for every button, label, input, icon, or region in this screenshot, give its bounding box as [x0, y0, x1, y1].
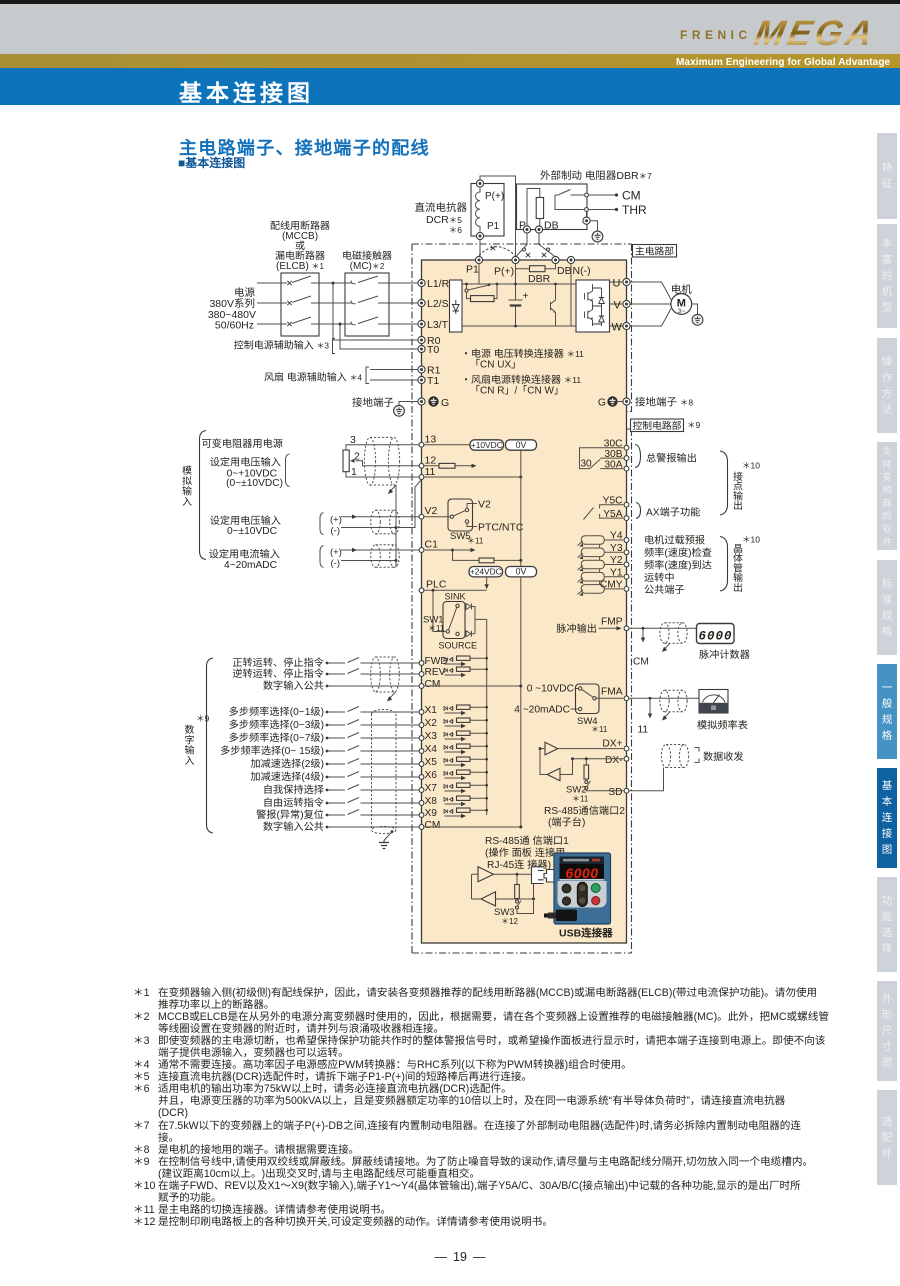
- svg-text:字: 字: [185, 734, 195, 746]
- svg-text:P(+): P(+): [494, 266, 514, 278]
- svg-text:加减速选择(4级): 加减速选择(4级): [250, 771, 324, 783]
- svg-text:CM: CM: [633, 657, 649, 668]
- svg-text:3: 3: [350, 434, 356, 446]
- svg-text:DX-: DX-: [605, 755, 623, 766]
- svg-text:・风扇电源转换连接器 ＊11: ・风扇电源转换连接器 ＊11: [461, 374, 581, 386]
- svg-text:N(-): N(-): [573, 265, 591, 277]
- svg-text:CM: CM: [622, 189, 641, 203]
- svg-text:警报(异常)复位: 警报(异常)复位: [256, 809, 324, 821]
- svg-text:多步频率选择(0~7级): 多步频率选择(0~7级): [229, 732, 324, 744]
- svg-text:1: 1: [351, 466, 357, 478]
- svg-text:P1: P1: [466, 264, 479, 276]
- svg-text:主电路部: 主电路部: [635, 246, 674, 258]
- svg-text:入: 入: [185, 755, 195, 767]
- svg-text:RS-485通 信端口1: RS-485通 信端口1: [485, 835, 569, 847]
- svg-text:11: 11: [638, 725, 649, 736]
- svg-text:出: 出: [733, 582, 743, 594]
- svg-text:直流电抗器: 直流电抗器: [415, 202, 468, 214]
- svg-text:L3/T: L3/T: [427, 319, 449, 331]
- svg-text:CMY: CMY: [600, 580, 623, 591]
- svg-text:(0~±10VDC): (0~±10VDC): [226, 478, 283, 489]
- svg-text:THR: THR: [622, 203, 647, 217]
- svg-text:DX+: DX+: [602, 738, 622, 749]
- svg-text:2: 2: [354, 451, 360, 463]
- svg-text:加减速选择(2级): 加减速选择(2级): [250, 758, 324, 770]
- svg-text:接地端子: 接地端子: [352, 397, 394, 409]
- svg-text:接地端子 ＊8: 接地端子 ＊8: [635, 397, 693, 409]
- svg-text:出: 出: [733, 500, 743, 512]
- svg-text:电机过载预报: 电机过载预报: [644, 535, 705, 547]
- svg-text:50/60Hz: 50/60Hz: [215, 320, 254, 332]
- svg-text:＊10: ＊10: [742, 461, 760, 471]
- svg-text:L2/S: L2/S: [427, 298, 449, 310]
- svg-text:6000: 6000: [565, 865, 598, 881]
- svg-text:(+): (+): [330, 547, 342, 558]
- svg-text:数据收发: 数据收发: [703, 751, 744, 763]
- svg-text:入: 入: [182, 496, 192, 508]
- svg-text:V2: V2: [478, 499, 491, 511]
- svg-text:数: 数: [185, 724, 195, 736]
- svg-text:U: U: [613, 278, 621, 290]
- svg-text:＊11: ＊11: [428, 624, 445, 633]
- svg-text:数字输入公共: 数字输入公共: [263, 680, 324, 692]
- svg-text:控制电路部: 控制电路部: [633, 420, 682, 432]
- svg-text:+: +: [523, 291, 529, 302]
- svg-text:Y1: Y1: [610, 567, 623, 578]
- svg-text:逆转运转、停止指令: 逆转运转、停止指令: [232, 668, 324, 680]
- svg-text:P(+): P(+): [485, 191, 504, 202]
- svg-text:＊6: ＊6: [449, 225, 463, 235]
- svg-text:可变电阻器用电源: 可变电阻器用电源: [202, 438, 284, 450]
- svg-text:(ELCB) ＊1: (ELCB) ＊1: [276, 261, 325, 272]
- svg-text:Y2: Y2: [610, 555, 623, 566]
- svg-text:输: 输: [182, 486, 192, 498]
- svg-text:频率(速度)检查: 频率(速度)检查: [644, 547, 712, 559]
- svg-text:FMP: FMP: [601, 617, 623, 628]
- svg-text:设定用电压输入: 设定用电压输入: [210, 457, 281, 469]
- svg-text:多步频率选择(0~ 15级): 多步频率选择(0~ 15级): [220, 745, 324, 757]
- svg-text:X5: X5: [425, 757, 438, 768]
- svg-text:X6: X6: [425, 770, 438, 781]
- svg-text:(操作 面板 连接用: (操作 面板 连接用: [485, 847, 565, 859]
- svg-text:总警报输出: 总警报输出: [646, 453, 697, 465]
- svg-text:Y4: Y4: [610, 531, 623, 542]
- svg-text:(-): (-): [331, 558, 341, 569]
- svg-text:运转中: 运转中: [644, 572, 675, 584]
- svg-text:DB: DB: [557, 265, 572, 277]
- svg-text:＊11: ＊11: [467, 537, 484, 546]
- svg-text:(MC)＊2: (MC)＊2: [350, 261, 385, 272]
- svg-text:风扇 电源辅助输入 ＊4: 风扇 电源辅助输入 ＊4: [264, 372, 363, 384]
- svg-text:13: 13: [425, 434, 437, 446]
- svg-text:0~±10VDC: 0~±10VDC: [227, 526, 277, 537]
- svg-text:X4: X4: [425, 744, 438, 755]
- svg-text:CM: CM: [425, 679, 441, 690]
- svg-text:DB: DB: [544, 220, 559, 232]
- svg-text:4~20mADC: 4~20mADC: [224, 560, 277, 571]
- svg-text:CM: CM: [425, 820, 441, 831]
- svg-text:SINK: SINK: [445, 592, 466, 602]
- svg-text:控制电源辅助输入 ＊3: 控制电源辅助输入 ＊3: [234, 340, 330, 352]
- svg-text:G: G: [598, 397, 606, 409]
- svg-text:0V: 0V: [516, 440, 527, 450]
- svg-text:FMA: FMA: [601, 687, 623, 698]
- svg-text:自我保持选择: 自我保持选择: [263, 784, 324, 796]
- svg-text:X8: X8: [425, 796, 438, 807]
- svg-text:PLC: PLC: [426, 579, 447, 591]
- svg-text:SOURCE: SOURCE: [439, 641, 478, 651]
- svg-text:12: 12: [425, 455, 437, 467]
- svg-text:C1: C1: [425, 539, 439, 551]
- svg-text:PTC/NTC: PTC/NTC: [478, 522, 524, 534]
- svg-text:公共端子: 公共端子: [644, 584, 685, 596]
- svg-text:+10VDC: +10VDC: [471, 440, 503, 450]
- svg-text:V2: V2: [425, 505, 438, 517]
- svg-text:＊9: ＊9: [196, 714, 210, 724]
- svg-text:频率(速度)到达: 频率(速度)到达: [644, 560, 712, 572]
- svg-text:自由运转指令: 自由运转指令: [263, 797, 324, 809]
- svg-text:T1: T1: [427, 375, 439, 387]
- svg-text:+24VDC: +24VDC: [470, 567, 502, 577]
- svg-text:「CN R」/「CN W」: 「CN R」/「CN W」: [470, 385, 564, 397]
- svg-text:REV: REV: [425, 667, 446, 678]
- svg-text:L1/R: L1/R: [427, 278, 450, 290]
- svg-text:6000: 6000: [698, 630, 732, 644]
- svg-text:X2: X2: [425, 718, 438, 729]
- svg-text:＊12: ＊12: [501, 917, 518, 926]
- svg-text:X3: X3: [425, 731, 438, 742]
- svg-text:电机: 电机: [671, 284, 692, 296]
- svg-text:模拟频率表: 模拟频率表: [697, 720, 748, 732]
- svg-text:V: V: [614, 300, 622, 312]
- svg-text:多步频率选择(0~3级): 多步频率选择(0~3级): [229, 719, 324, 731]
- svg-text:＊9: ＊9: [687, 420, 701, 430]
- svg-text:脉冲计数器: 脉冲计数器: [699, 649, 750, 661]
- svg-text:设定用电流输入: 设定用电流输入: [209, 549, 280, 561]
- svg-text:＊11: ＊11: [572, 795, 589, 804]
- svg-text:输: 输: [185, 745, 195, 757]
- svg-text:11: 11: [425, 466, 436, 478]
- svg-text:USB连接器: USB连接器: [559, 927, 613, 940]
- svg-text:X7: X7: [425, 783, 438, 794]
- svg-text:0V: 0V: [516, 567, 527, 577]
- svg-text:AX端子功能: AX端子功能: [646, 507, 700, 519]
- svg-text:数字输入公共: 数字输入公共: [263, 821, 324, 833]
- svg-text:0 ~10VDC: 0 ~10VDC: [527, 684, 574, 695]
- svg-text:4 ~20mADC: 4 ~20mADC: [514, 705, 570, 716]
- svg-text:SD: SD: [608, 787, 622, 798]
- svg-text:W: W: [612, 322, 623, 334]
- svg-text:30: 30: [581, 458, 593, 469]
- svg-text:G: G: [441, 397, 449, 409]
- svg-text:X1: X1: [425, 705, 438, 716]
- svg-text:Y3: Y3: [610, 543, 623, 554]
- svg-text:「CN UX」: 「CN UX」: [470, 359, 521, 371]
- svg-text:脉冲输出: 脉冲输出: [556, 623, 597, 635]
- svg-text:3~: 3~: [678, 308, 686, 315]
- svg-text:拟: 拟: [182, 475, 192, 487]
- svg-text:＊10: ＊10: [742, 535, 760, 545]
- svg-text:＊11: ＊11: [591, 725, 608, 734]
- svg-text:T0: T0: [427, 344, 439, 356]
- svg-text:模: 模: [182, 465, 192, 477]
- svg-text:正转运转、停止指令: 正转运转、停止指令: [232, 657, 324, 669]
- svg-text:P1: P1: [487, 221, 500, 232]
- svg-text:X9: X9: [425, 808, 438, 819]
- svg-text:(-): (-): [331, 526, 341, 537]
- svg-text:(端子台): (端子台): [548, 817, 585, 829]
- svg-text:DBR: DBR: [528, 273, 551, 285]
- svg-text:(+): (+): [330, 515, 342, 526]
- svg-text:外部制动 电阻器DBR＊7: 外部制动 电阻器DBR＊7: [540, 170, 652, 182]
- svg-text:・电源 电压转换连接器 ＊11: ・电源 电压转换连接器 ＊11: [461, 348, 584, 360]
- svg-text:RS-485通信端口2: RS-485通信端口2: [544, 805, 625, 817]
- svg-text:多步频率选择(0~1级): 多步频率选择(0~1级): [229, 706, 324, 718]
